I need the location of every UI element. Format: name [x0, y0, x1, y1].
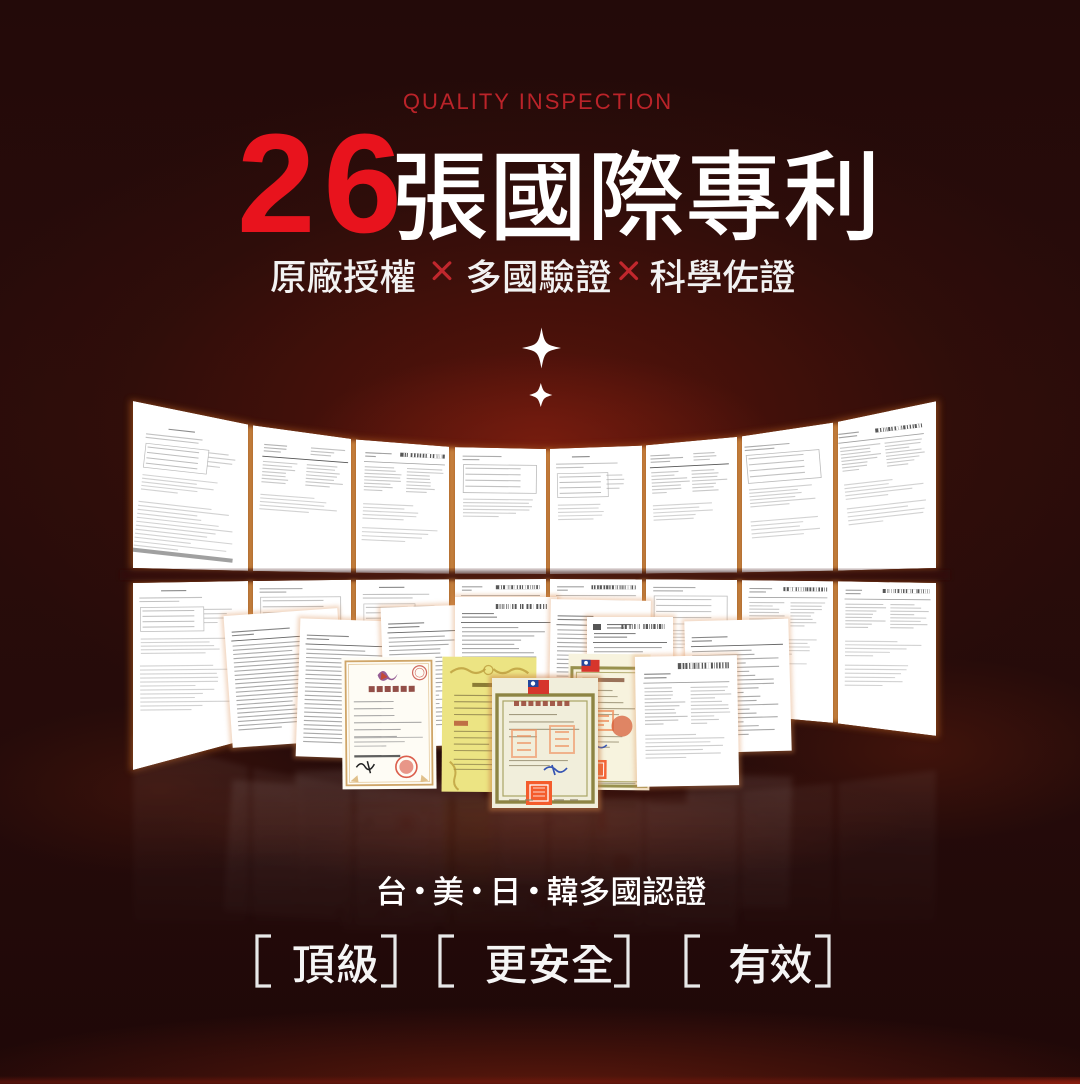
- svg-text:QUALITY INSPECTION: QUALITY INSPECTION: [403, 89, 673, 114]
- svg-text:26: 26: [237, 104, 410, 262]
